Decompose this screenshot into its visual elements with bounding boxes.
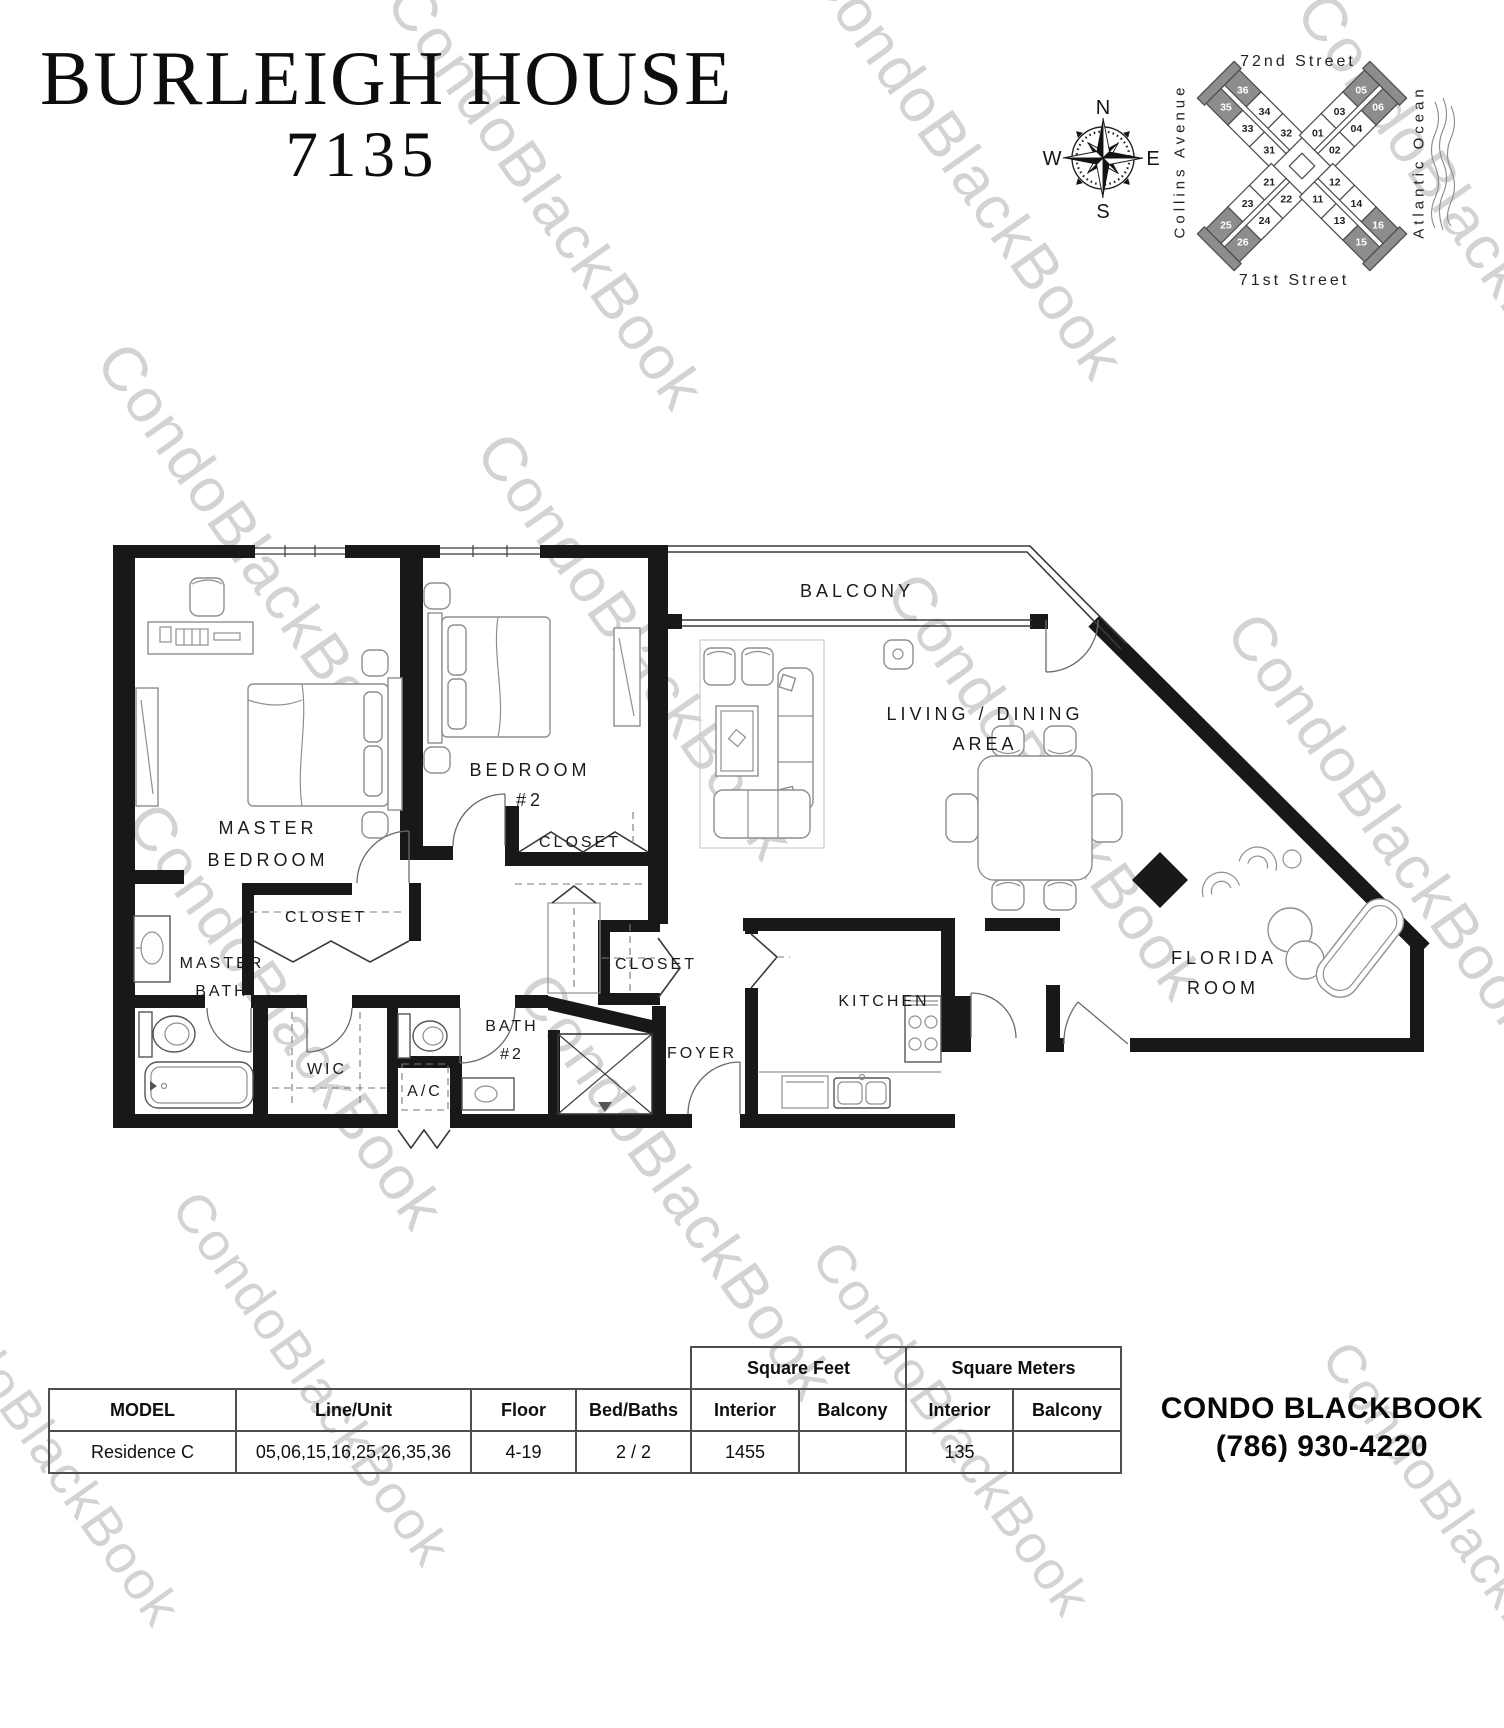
cell-model: Residence C	[49, 1431, 236, 1473]
label-florida-room: FLORIDA	[1171, 948, 1277, 968]
col-header-sqft-interior: Interior	[691, 1389, 799, 1431]
brand-block: CONDO BLACKBOOK (786) 930-4220	[1138, 1390, 1504, 1465]
label-living-dining: LIVING / DINING	[886, 704, 1083, 724]
building-name: BURLEIGH HOUSE	[40, 40, 685, 117]
label-bedroom2: BEDROOM	[469, 760, 590, 780]
cell-sqm-interior: 135	[906, 1431, 1013, 1473]
florida-furniture	[1132, 843, 1411, 1005]
label-closet-bedroom2: CLOSET	[539, 834, 621, 851]
cell-sqm-balcony	[1013, 1431, 1121, 1473]
label-closet-master: CLOSET	[285, 909, 367, 926]
label-florida-room: ROOM	[1187, 978, 1259, 998]
table-row: Residence C 05,06,15,16,25,26,35,36 4-19…	[49, 1431, 1121, 1473]
brand-phone: (786) 930-4220	[1138, 1428, 1504, 1466]
group-header-square-meters: Square Meters	[906, 1347, 1121, 1389]
label-wic: WIC	[307, 1061, 347, 1078]
master-bedroom-furniture	[136, 578, 402, 838]
label-master-bath: BATH	[195, 983, 248, 1000]
living-furniture	[700, 640, 913, 848]
street-label-collins: Collins Avenue	[1172, 84, 1189, 239]
street-label-72nd: 72nd Street	[1240, 53, 1356, 71]
col-header-sqm-balcony: Balcony	[1013, 1389, 1121, 1431]
street-label-71st: 71st Street	[1239, 272, 1349, 290]
label-ac: A/C	[407, 1083, 443, 1100]
label-master-bath: MASTER	[180, 955, 265, 972]
label-bedroom2: #2	[516, 790, 544, 810]
label-living-dining: AREA	[952, 734, 1017, 754]
col-header-line-unit: Line/Unit	[236, 1389, 471, 1431]
label-master-bedroom: BEDROOM	[207, 850, 328, 870]
label-kitchen: KITCHEN	[838, 993, 929, 1010]
group-header-square-feet: Square Feet	[691, 1347, 906, 1389]
cell-bed-baths: 2 / 2	[576, 1431, 691, 1473]
cell-sqft-interior: 1455	[691, 1431, 799, 1473]
cell-line-unit: 05,06,15,16,25,26,35,36	[236, 1431, 471, 1473]
col-header-bed-baths: Bed/Baths	[576, 1389, 691, 1431]
label-closet-hall: CLOSET	[615, 956, 697, 973]
cell-sqft-balcony	[799, 1431, 906, 1473]
col-header-model: MODEL	[49, 1389, 236, 1431]
col-header-floor: Floor	[471, 1389, 576, 1431]
col-header-sqm-interior: Interior	[906, 1389, 1013, 1431]
spec-table: Square Feet Square Meters MODEL Line/Uni…	[48, 1346, 1122, 1474]
kitchen-fixtures	[759, 996, 941, 1108]
floor-plan: BALCONY MASTER BEDROOM BEDROOM #2 CLOSET…	[0, 0, 1504, 1502]
col-header-sqft-balcony: Balcony	[799, 1389, 906, 1431]
ocean-label-atlantic: Atlantic Ocean	[1411, 85, 1428, 239]
label-balcony: BALCONY	[800, 581, 914, 601]
building-number: 7135	[40, 123, 685, 188]
page-title: BURLEIGH HOUSE 7135	[40, 40, 685, 188]
table-spacer	[49, 1347, 691, 1389]
label-foyer: FOYER	[667, 1045, 737, 1062]
column	[1132, 852, 1188, 908]
label-bath2: #2	[500, 1046, 524, 1063]
bedroom2-furniture	[424, 583, 640, 773]
brand-name: CONDO BLACKBOOK	[1138, 1390, 1504, 1428]
cell-floor: 4-19	[471, 1431, 576, 1473]
label-master-bedroom: MASTER	[218, 818, 317, 838]
label-bath2: BATH	[485, 1018, 538, 1035]
